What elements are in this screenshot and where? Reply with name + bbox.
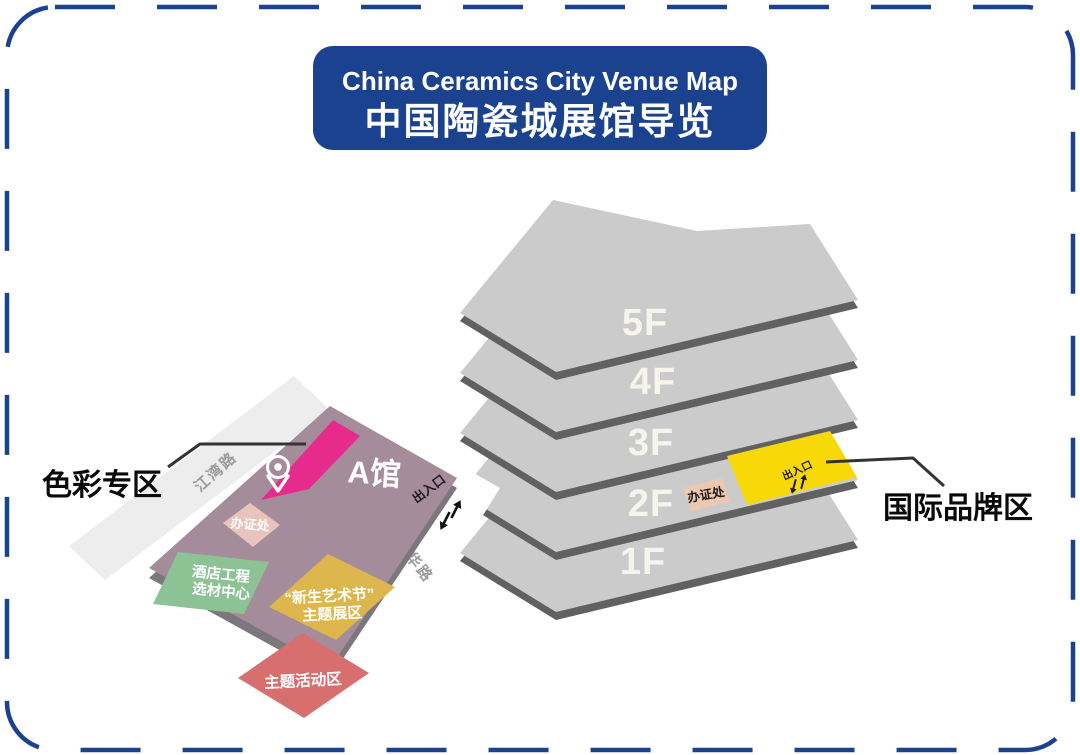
venue-map-poster: 江湾路 5F 4F 3F 2F 1F 出入口 办证处 (0, 0, 1080, 755)
venue-map-canvas: 江湾路 5F 4F 3F 2F 1F 出入口 办证处 (0, 0, 1080, 755)
hall-a-name-label: A馆 (346, 454, 402, 493)
title-banner: China Ceramics City Venue Map 中国陶瓷城展馆导览 (313, 46, 767, 150)
international-zone-callout-label: 国际品牌区 (883, 492, 1033, 525)
floor-label-2f: 2F (628, 483, 674, 525)
svg-text:主题展区: 主题展区 (302, 603, 363, 624)
floor-label-1f: 1F (620, 541, 666, 583)
tower-stack: 5F 4F 3F 2F 1F (460, 200, 858, 620)
title-english: China Ceramics City Venue Map (342, 66, 738, 96)
floor-label-3f: 3F (628, 422, 674, 464)
color-zone-callout-label: 色彩专区 (42, 469, 162, 502)
title-chinese: 中国陶瓷城展馆导览 (365, 101, 716, 142)
floor-label-4f: 4F (630, 361, 676, 403)
floor-label-5f: 5F (622, 302, 668, 344)
